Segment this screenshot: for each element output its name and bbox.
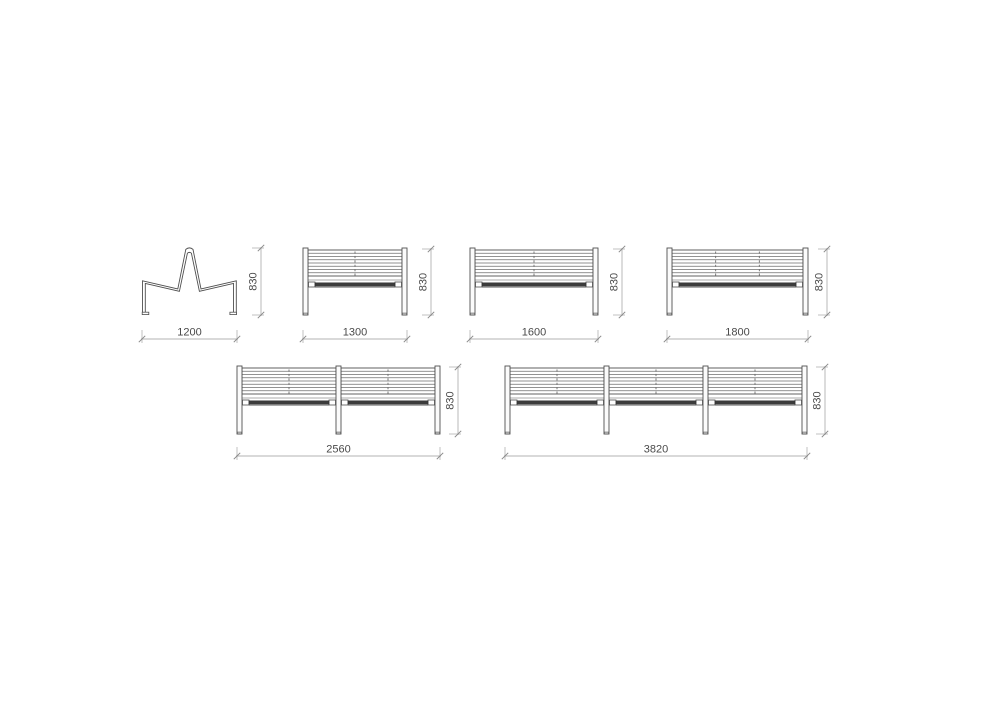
width-dim-label: 1200 bbox=[177, 327, 201, 339]
bench-leg bbox=[470, 248, 475, 315]
seat-bracket bbox=[395, 282, 402, 287]
bench-leg bbox=[667, 248, 672, 315]
seat-bracket bbox=[511, 400, 518, 405]
bench-leg-foot bbox=[803, 313, 807, 315]
side-foot-plate bbox=[230, 312, 237, 314]
height-dim-label: 830 bbox=[814, 273, 826, 291]
bench-front-1800-group: 1800830 bbox=[664, 246, 830, 343]
bench-leg bbox=[803, 248, 808, 315]
seat-rail-bar bbox=[715, 401, 795, 405]
seat-bracket bbox=[476, 282, 483, 287]
side-foot-plate bbox=[142, 312, 149, 314]
bench-leg-foot bbox=[435, 432, 439, 434]
seat-bracket bbox=[795, 400, 802, 405]
seat-rail-bar bbox=[679, 283, 796, 287]
bench-leg bbox=[336, 366, 341, 434]
seat-bracket bbox=[610, 400, 617, 405]
bench-leg bbox=[802, 366, 807, 434]
bench-leg bbox=[402, 248, 407, 315]
seat-bracket bbox=[796, 282, 803, 287]
bench-leg-foot bbox=[667, 313, 671, 315]
seat-bracket bbox=[243, 400, 250, 405]
bench-leg-foot bbox=[303, 313, 307, 315]
bench-front-2560-group: 2560830 bbox=[234, 364, 461, 460]
seat-bracket bbox=[342, 400, 349, 405]
bench-leg bbox=[435, 366, 440, 434]
bench-leg-foot bbox=[237, 432, 241, 434]
bench-side-view-group: 1200830 bbox=[139, 245, 264, 343]
height-dim-label: 830 bbox=[445, 391, 457, 409]
width-dim-label: 1600 bbox=[522, 327, 546, 339]
seat-bracket bbox=[329, 400, 336, 405]
bench-leg bbox=[505, 366, 510, 434]
bench-leg bbox=[303, 248, 308, 315]
height-dim-label: 830 bbox=[812, 391, 824, 409]
bench-leg bbox=[593, 248, 598, 315]
bench-dimension-drawing: 1200830130083016008301800830256083038208… bbox=[0, 0, 1000, 707]
height-dim-label: 830 bbox=[418, 273, 430, 291]
bench-leg bbox=[703, 366, 708, 434]
seat-bracket bbox=[597, 400, 604, 405]
bench-leg-foot bbox=[470, 313, 474, 315]
bench-leg-foot bbox=[604, 432, 608, 434]
seat-bracket bbox=[696, 400, 703, 405]
seat-rail-bar bbox=[482, 283, 586, 287]
seat-bracket bbox=[709, 400, 716, 405]
height-dim-label: 830 bbox=[248, 272, 260, 290]
bench-leg bbox=[604, 366, 609, 434]
bench-leg-foot bbox=[505, 432, 509, 434]
side-profile-inner-line bbox=[145, 252, 233, 314]
bench-leg bbox=[237, 366, 242, 434]
bench-leg-foot bbox=[802, 432, 806, 434]
seat-bracket bbox=[428, 400, 435, 405]
bench-front-1300-group: 1300830 bbox=[300, 246, 434, 343]
seat-bracket bbox=[673, 282, 680, 287]
height-dim-label: 830 bbox=[609, 273, 621, 291]
width-dim-label: 3820 bbox=[644, 444, 668, 456]
bench-leg-foot bbox=[336, 432, 340, 434]
bench-front-1600-group: 1600830 bbox=[467, 246, 625, 343]
width-dim-label: 1300 bbox=[343, 327, 367, 339]
seat-rail-bar bbox=[315, 283, 395, 287]
bench-leg-foot bbox=[593, 313, 597, 315]
side-profile bbox=[142, 248, 236, 315]
seat-bracket bbox=[586, 282, 593, 287]
seat-rail-bar bbox=[616, 401, 696, 405]
bench-front-3820-group: 3820830 bbox=[502, 364, 828, 460]
bench-leg-foot bbox=[402, 313, 406, 315]
seat-rail-bar bbox=[348, 401, 428, 405]
seat-bracket bbox=[309, 282, 316, 287]
width-dim-label: 2560 bbox=[326, 444, 350, 456]
seat-rail-bar bbox=[249, 401, 329, 405]
seat-rail-bar bbox=[517, 401, 597, 405]
bench-leg-foot bbox=[703, 432, 707, 434]
width-dim-label: 1800 bbox=[725, 327, 749, 339]
side-profile-outer-line bbox=[143, 248, 237, 315]
drawing-sheet: 1200830130083016008301800830256083038208… bbox=[0, 0, 1000, 707]
